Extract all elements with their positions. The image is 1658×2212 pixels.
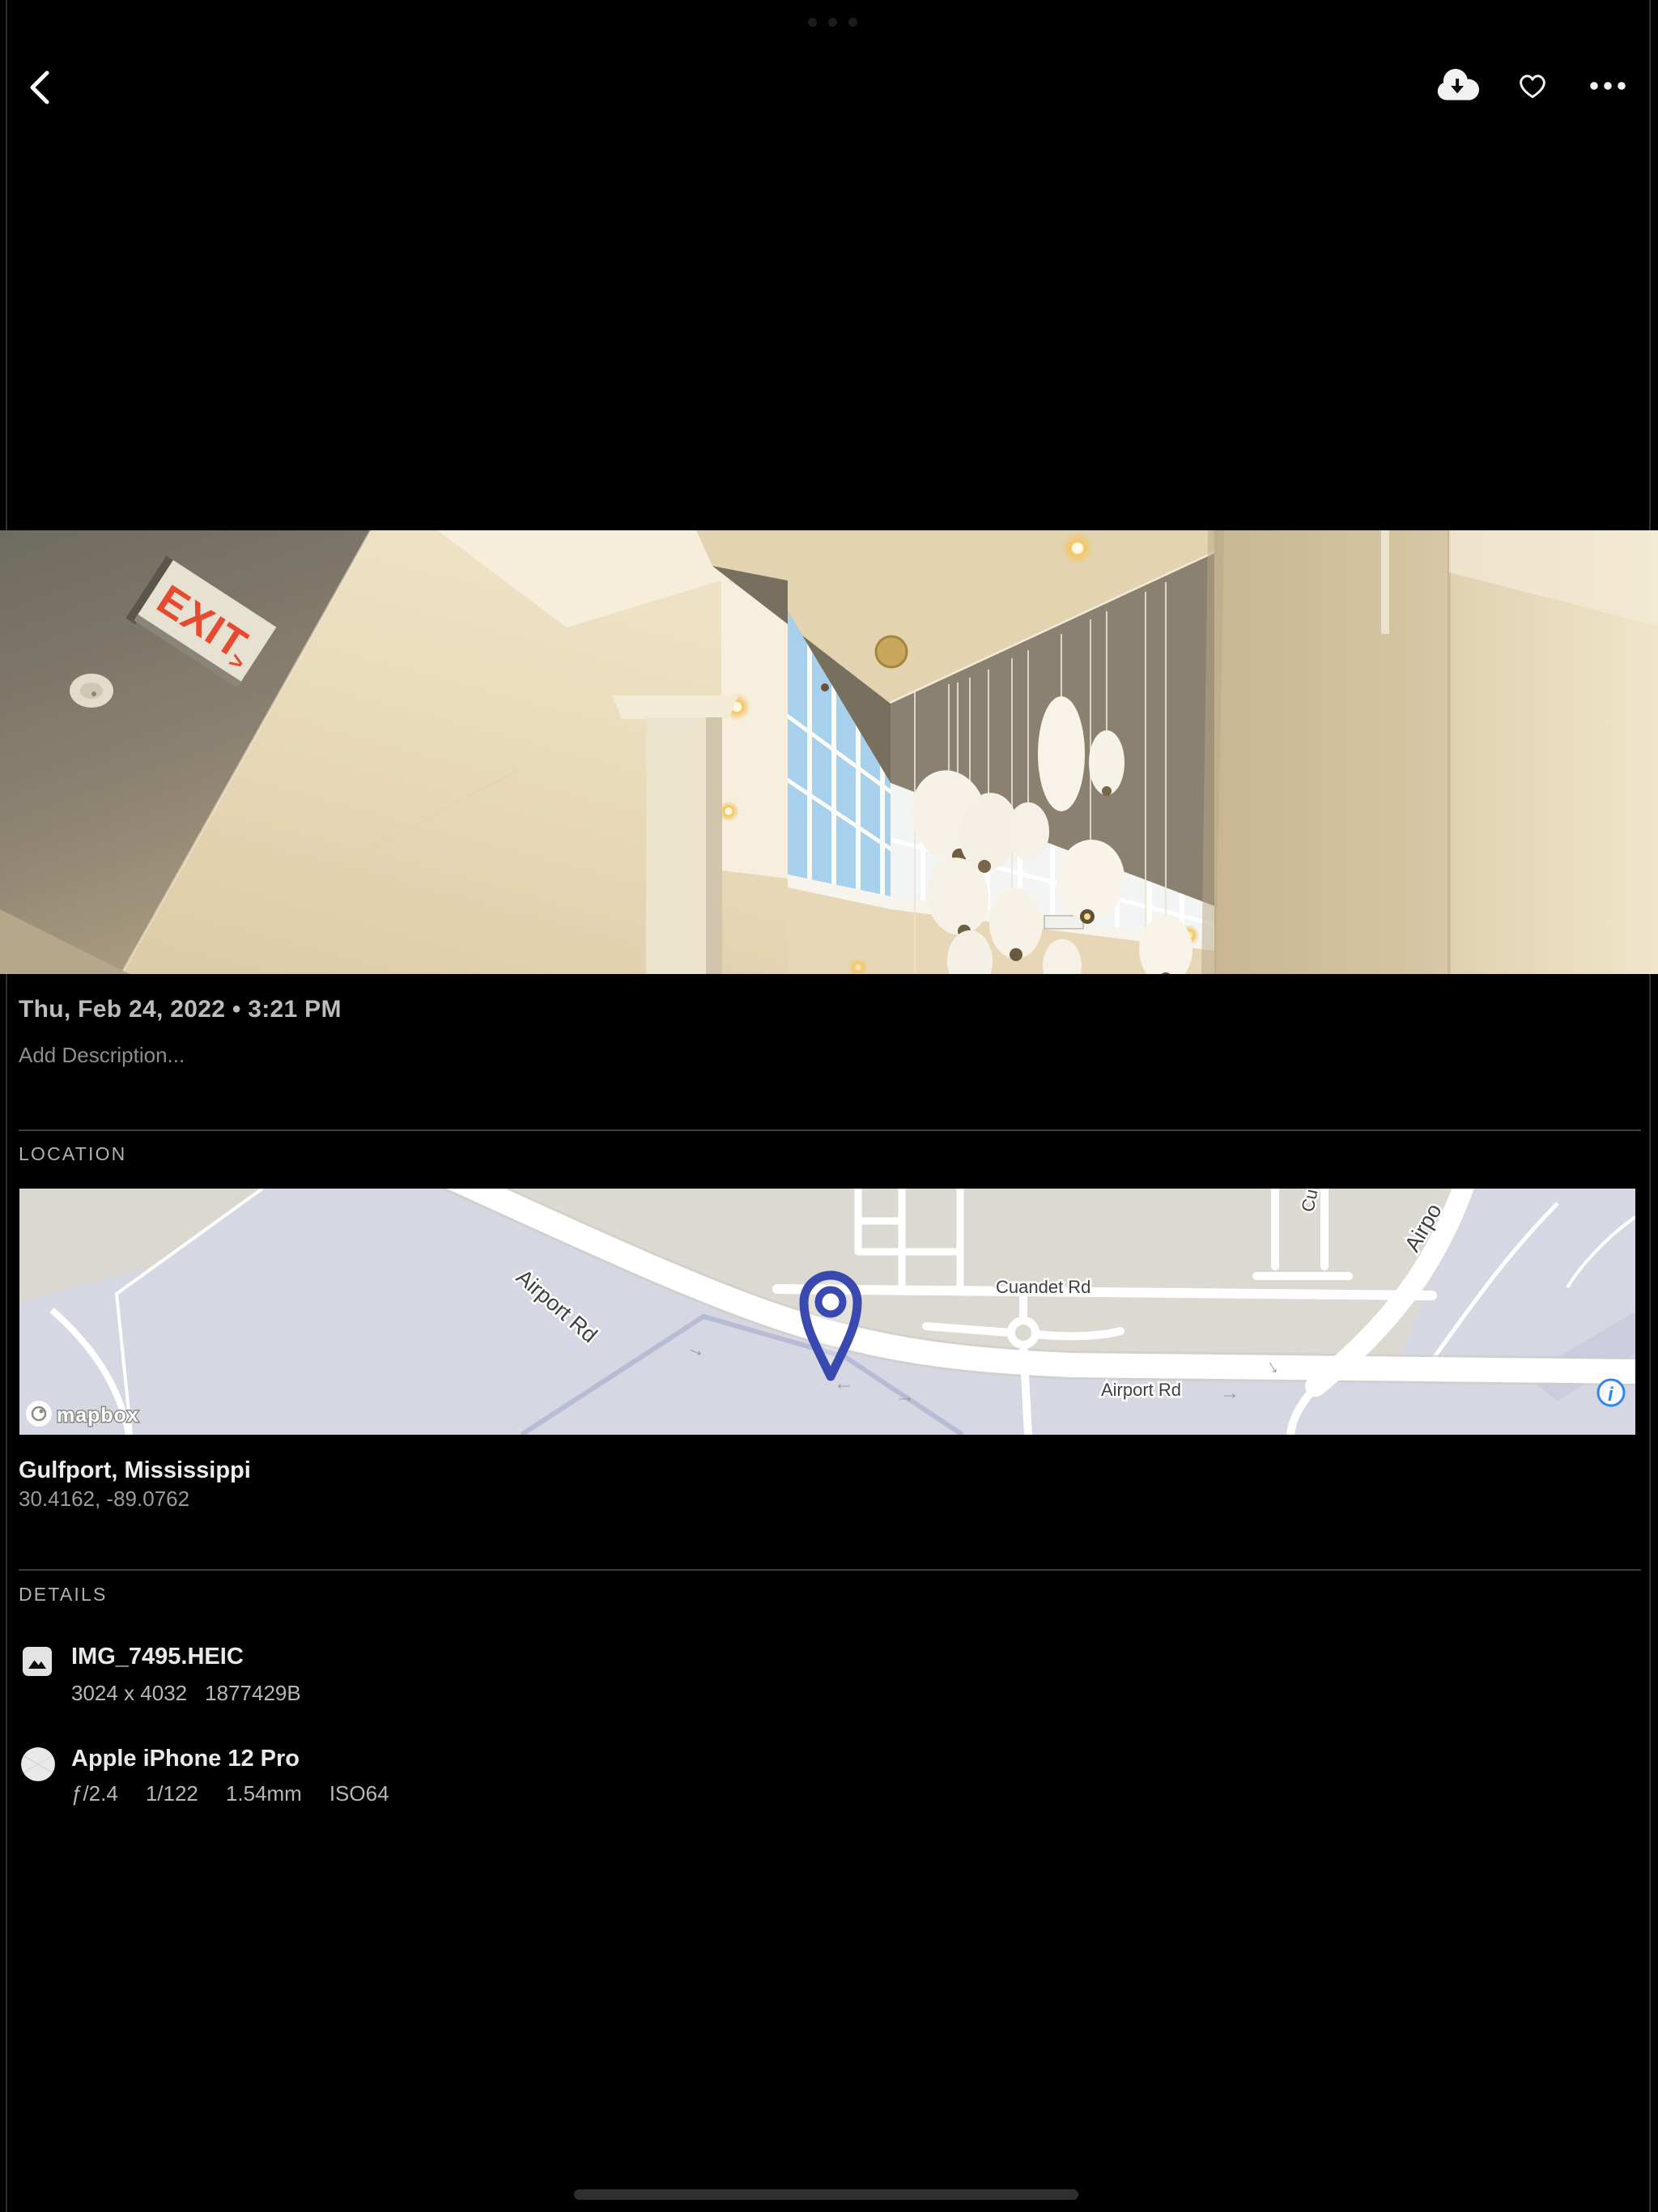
- svg-text:→: →: [1220, 1382, 1239, 1404]
- description-input[interactable]: Add Description...: [19, 1043, 185, 1068]
- camera-name: Apple iPhone 12 Pro: [71, 1746, 300, 1772]
- divider: [19, 1129, 1641, 1131]
- camera-aperture: ƒ/2.4: [71, 1781, 118, 1806]
- favorite-button[interactable]: [1515, 70, 1550, 104]
- svg-text:←: ←: [834, 1372, 853, 1394]
- image-file-icon: [21, 1645, 53, 1682]
- fascia-band: [721, 579, 788, 878]
- camera-focal-length: 1.54mm: [226, 1781, 302, 1806]
- location-place: Gulfport, Mississippi: [19, 1457, 251, 1484]
- heart-icon: [1515, 92, 1550, 104]
- map-info-button[interactable]: i: [1598, 1380, 1624, 1406]
- camera-shutter: 1/122: [146, 1781, 198, 1806]
- back-button[interactable]: [24, 68, 57, 109]
- more-options-button[interactable]: [1588, 80, 1627, 94]
- atrium-photo: EXIT >: [0, 530, 1658, 974]
- roundabout: [1011, 1321, 1035, 1345]
- left-bezel-line: [6, 0, 7, 2212]
- sprinkler: [821, 683, 829, 691]
- map-label-cuandet-rd: Cuandet Rd: [996, 1277, 1090, 1297]
- multitasking-dots-icon[interactable]: [808, 18, 857, 27]
- photo-date: Thu, Feb 24, 2022 • 3:21 PM: [19, 996, 342, 1023]
- file-meta: 3024 x 40321877429B: [71, 1681, 301, 1706]
- cloud-download-icon: [1435, 94, 1480, 106]
- file-size: 1877429B: [205, 1681, 301, 1705]
- photo-viewer[interactable]: EXIT >: [0, 530, 1658, 974]
- svg-text:→: →: [895, 1385, 915, 1407]
- map-canvas: → ← → → → Airport Rd Cuandet Rd Airport …: [19, 1189, 1635, 1435]
- pipe: [1381, 530, 1389, 634]
- download-button[interactable]: [1435, 68, 1480, 106]
- mapbox-wordmark: mapbox: [57, 1404, 139, 1427]
- ellipsis-icon: [1588, 82, 1627, 94]
- atrium-corner-wall: [1214, 530, 1451, 974]
- map-label-airport-rd: Airport Rd: [1101, 1380, 1181, 1400]
- location-coordinates: 30.4162, -89.0762: [19, 1487, 189, 1512]
- details-section-label: DETAILS: [19, 1584, 108, 1606]
- column-capital: [612, 696, 738, 719]
- home-indicator[interactable]: [574, 2189, 1078, 2200]
- photo-detail-screen: EXIT > Thu, Feb 24, 2022 • 3:21 PM Add D…: [0, 0, 1658, 2212]
- ceiling-speaker: [876, 636, 907, 667]
- location-section-label: LOCATION: [19, 1143, 126, 1165]
- divider: [19, 1569, 1641, 1571]
- aperture-icon: [19, 1746, 57, 1787]
- file-dimensions: 3024 x 4032: [71, 1681, 187, 1705]
- location-map[interactable]: → ← → → → Airport Rd Cuandet Rd Airport …: [19, 1189, 1635, 1435]
- file-name: IMG_7495.HEIC: [71, 1644, 244, 1670]
- right-bezel-line: [1649, 0, 1651, 2212]
- camera-meta: ƒ/2.41/1221.54mmISO64: [71, 1781, 389, 1806]
- camera-iso: ISO64: [329, 1781, 389, 1806]
- mapbox-logo[interactable]: mapbox: [26, 1401, 139, 1427]
- chevron-left-icon: [24, 97, 57, 109]
